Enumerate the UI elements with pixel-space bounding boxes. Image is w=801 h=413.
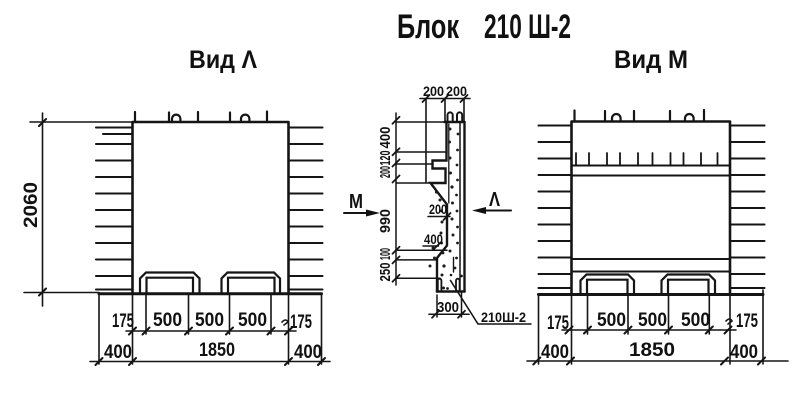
svg-text:500: 500 bbox=[638, 309, 667, 331]
svg-text:2060: 2060 bbox=[21, 182, 42, 228]
svg-text:990: 990 bbox=[378, 209, 394, 233]
svg-text:М: М bbox=[349, 191, 363, 213]
svg-text:120: 120 bbox=[378, 151, 394, 166]
svg-text:Вид М: Вид М bbox=[614, 46, 688, 74]
svg-text:175: 175 bbox=[736, 310, 758, 332]
svg-text:400: 400 bbox=[730, 341, 758, 363]
svg-text:500: 500 bbox=[681, 309, 710, 331]
svg-text:Λ: Λ bbox=[489, 189, 501, 211]
svg-text:1850: 1850 bbox=[199, 339, 235, 361]
svg-text:500: 500 bbox=[597, 309, 626, 331]
svg-text:400: 400 bbox=[104, 341, 132, 363]
svg-text:400: 400 bbox=[424, 231, 443, 247]
svg-text:Блок: Блок bbox=[397, 8, 460, 46]
svg-text:250: 250 bbox=[378, 263, 394, 282]
svg-text:200: 200 bbox=[429, 201, 447, 217]
svg-text:1850: 1850 bbox=[629, 339, 675, 361]
svg-text:210 Ш-2: 210 Ш-2 bbox=[484, 8, 571, 46]
svg-text:200: 200 bbox=[446, 83, 467, 99]
svg-text:500: 500 bbox=[238, 309, 267, 331]
svg-text:175: 175 bbox=[112, 310, 134, 332]
svg-text:500: 500 bbox=[195, 309, 224, 331]
svg-text:Вид Λ: Вид Λ bbox=[189, 46, 257, 74]
svg-text:100: 100 bbox=[378, 248, 394, 260]
svg-text:200: 200 bbox=[378, 166, 394, 178]
svg-text:300: 300 bbox=[437, 299, 459, 316]
svg-text:500: 500 bbox=[153, 309, 182, 331]
svg-text:175: 175 bbox=[290, 311, 312, 333]
svg-text:400: 400 bbox=[541, 341, 569, 363]
svg-text:175: 175 bbox=[547, 312, 569, 334]
svg-text:200: 200 bbox=[423, 83, 444, 99]
svg-text:400: 400 bbox=[378, 127, 394, 149]
svg-text:210Ш-2: 210Ш-2 bbox=[481, 309, 526, 325]
svg-text:400: 400 bbox=[294, 341, 322, 363]
